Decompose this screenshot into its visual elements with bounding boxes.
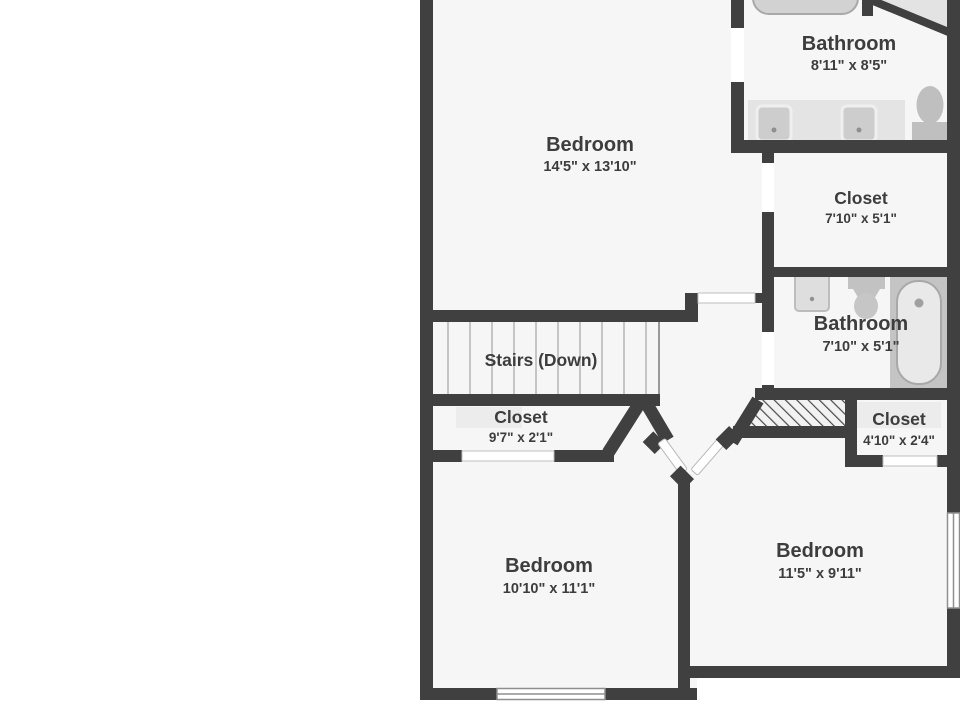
wall bbox=[762, 212, 774, 303]
tub-drain-icon bbox=[915, 299, 924, 308]
sink-icon bbox=[757, 106, 791, 141]
sink-icon bbox=[842, 106, 876, 141]
wall bbox=[762, 267, 954, 277]
hall-closet-dims: 9'7" x 2'1" bbox=[489, 430, 553, 445]
hall-bathroom-label: Bathroom bbox=[814, 313, 908, 335]
bedroom-2-label: Bedroom bbox=[505, 555, 593, 577]
window bbox=[497, 689, 605, 700]
toilet-tank-icon bbox=[912, 122, 949, 142]
master-bedroom-dims: 14'5" x 13'10" bbox=[543, 159, 636, 175]
sink-drain-icon bbox=[810, 297, 814, 301]
toilet-icon bbox=[917, 86, 944, 124]
bedroom2-closet-dims: 4'10" x 2'4" bbox=[863, 433, 935, 448]
stairs-label: Stairs (Down) bbox=[485, 350, 598, 370]
hall-bathroom-dims: 7'10" x 5'1" bbox=[822, 339, 899, 355]
door-opening-master-closet bbox=[762, 163, 774, 212]
master-closet-label: Closet bbox=[834, 188, 888, 208]
sink-drain-icon bbox=[772, 128, 777, 133]
sink-drain-icon bbox=[857, 128, 862, 133]
floorplan-canvas: Bedroom 14'5" x 13'10" Bathroom 8'11" x … bbox=[0, 0, 960, 720]
hall-closet-label: Closet bbox=[494, 407, 548, 427]
bedroom2-closet-label: Closet bbox=[872, 409, 926, 429]
wall bbox=[731, 82, 744, 146]
wall bbox=[762, 303, 774, 332]
door-opening-master-bedroom bbox=[698, 293, 755, 303]
master-bedroom-label: Bedroom bbox=[546, 134, 634, 156]
sink-icon bbox=[795, 272, 829, 311]
wall bbox=[862, 0, 873, 16]
wall bbox=[420, 394, 660, 406]
wall bbox=[731, 140, 954, 153]
wall bbox=[733, 426, 845, 438]
wall bbox=[420, 450, 462, 462]
bedroom-3-label: Bedroom bbox=[776, 540, 864, 562]
bedroom-3-dims: 11'5" x 9'11" bbox=[778, 566, 862, 582]
wall bbox=[937, 455, 960, 467]
wall bbox=[678, 666, 960, 678]
wall bbox=[731, 0, 744, 28]
bedroom-2-dims: 10'10" x 11'1" bbox=[503, 581, 595, 597]
door-opening-master-bath bbox=[731, 28, 744, 82]
master-bathroom-label: Bathroom bbox=[802, 33, 896, 55]
master-bathroom-dims: 8'11" x 8'5" bbox=[811, 58, 887, 74]
wall bbox=[420, 310, 685, 322]
wall bbox=[420, 0, 433, 700]
wall bbox=[845, 455, 883, 467]
closet-opening bbox=[883, 456, 937, 466]
closet-opening bbox=[462, 451, 554, 461]
wall bbox=[762, 153, 774, 163]
bathtub-icon bbox=[753, 0, 858, 14]
floorplan-page: Bedroom 14'5" x 13'10" Bathroom 8'11" x … bbox=[0, 0, 960, 720]
master-closet-dims: 7'10" x 5'1" bbox=[825, 211, 897, 226]
door-opening-hall-bath bbox=[762, 332, 774, 385]
wall bbox=[685, 293, 698, 322]
wall bbox=[755, 293, 774, 303]
window bbox=[948, 513, 960, 608]
wall bbox=[554, 450, 614, 462]
